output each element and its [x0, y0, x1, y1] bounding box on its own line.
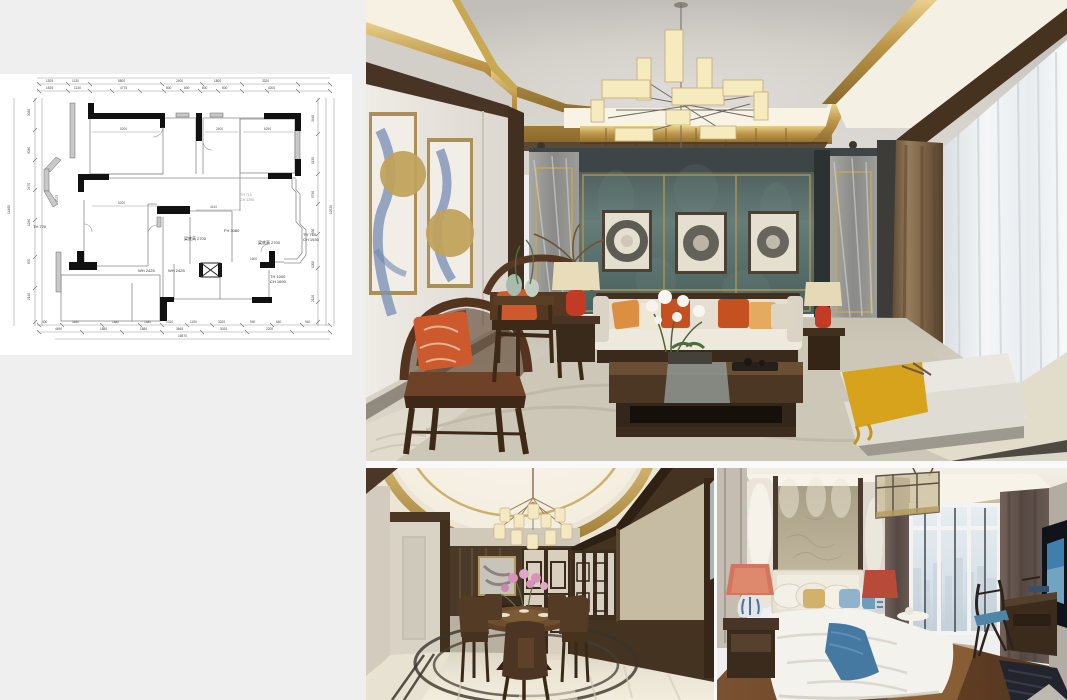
svg-text:940: 940 — [250, 320, 256, 324]
svg-text:1600: 1600 — [250, 257, 257, 261]
svg-text:CH 1930: CH 1930 — [303, 237, 320, 242]
svg-text:4490: 4490 — [55, 327, 62, 331]
svg-text:14460: 14460 — [7, 205, 11, 214]
svg-text:3030: 3030 — [27, 109, 31, 116]
svg-text:5800: 5800 — [118, 79, 125, 83]
svg-text:800: 800 — [222, 86, 228, 90]
svg-text:1290: 1290 — [27, 219, 31, 226]
svg-text:1525: 1525 — [46, 79, 53, 83]
svg-text:CH 1290: CH 1290 — [240, 198, 254, 202]
svg-text:3020: 3020 — [220, 327, 227, 331]
svg-text:TH 720: TH 720 — [33, 224, 47, 229]
svg-text:3645: 3645 — [176, 327, 183, 331]
svg-text:1525: 1525 — [46, 86, 53, 90]
svg-text:3440: 3440 — [311, 115, 315, 122]
svg-text:1130: 1130 — [311, 157, 315, 164]
svg-text:12520: 12520 — [329, 205, 333, 214]
svg-text:1010: 1010 — [166, 320, 173, 324]
svg-text:800: 800 — [166, 86, 172, 90]
svg-text:1130: 1130 — [74, 86, 81, 90]
svg-text:梁底高 2700: 梁底高 2700 — [258, 239, 281, 245]
svg-text:3030: 3030 — [27, 147, 31, 154]
svg-text:WH 2425: WH 2425 — [138, 268, 155, 273]
svg-text:800: 800 — [202, 86, 208, 90]
svg-text:870: 870 — [27, 258, 31, 264]
svg-text:梁底高 2700: 梁底高 2700 — [184, 235, 207, 241]
svg-text:3020: 3020 — [218, 320, 225, 324]
svg-text:1130: 1130 — [72, 79, 79, 83]
svg-text:1880: 1880 — [140, 327, 147, 331]
svg-text:5200: 5200 — [118, 201, 125, 205]
svg-text:940: 940 — [305, 320, 311, 324]
svg-text:2120: 2120 — [311, 295, 315, 302]
svg-text:4200: 4200 — [268, 86, 275, 90]
svg-text:2075: 2075 — [55, 195, 59, 202]
svg-text:1190: 1190 — [190, 320, 197, 324]
svg-text:2400: 2400 — [176, 79, 183, 83]
svg-text:1000: 1000 — [311, 261, 315, 268]
svg-text:1880: 1880 — [100, 327, 107, 331]
svg-text:5200: 5200 — [120, 127, 127, 131]
svg-text:16570: 16570 — [178, 334, 187, 338]
svg-text:FH 3080: FH 3080 — [224, 228, 240, 233]
svg-text:CH 1690: CH 1690 — [270, 279, 287, 284]
svg-text:5790: 5790 — [311, 191, 315, 198]
svg-text:1800: 1800 — [214, 79, 221, 83]
svg-text:2400: 2400 — [216, 127, 223, 131]
svg-text:800: 800 — [184, 86, 190, 90]
svg-text:640: 640 — [276, 320, 282, 324]
svg-text:2140: 2140 — [27, 293, 31, 300]
svg-text:2470: 2470 — [27, 183, 31, 190]
svg-text:3320: 3320 — [262, 79, 269, 83]
svg-text:6250: 6250 — [264, 127, 271, 131]
svg-text:400: 400 — [42, 320, 48, 324]
svg-text:4775: 4775 — [120, 86, 127, 90]
svg-text:WH 2425: WH 2425 — [168, 268, 185, 273]
svg-text:2200: 2200 — [266, 327, 273, 331]
svg-text:4410: 4410 — [210, 205, 217, 209]
svg-text:TH 710: TH 710 — [240, 193, 252, 197]
